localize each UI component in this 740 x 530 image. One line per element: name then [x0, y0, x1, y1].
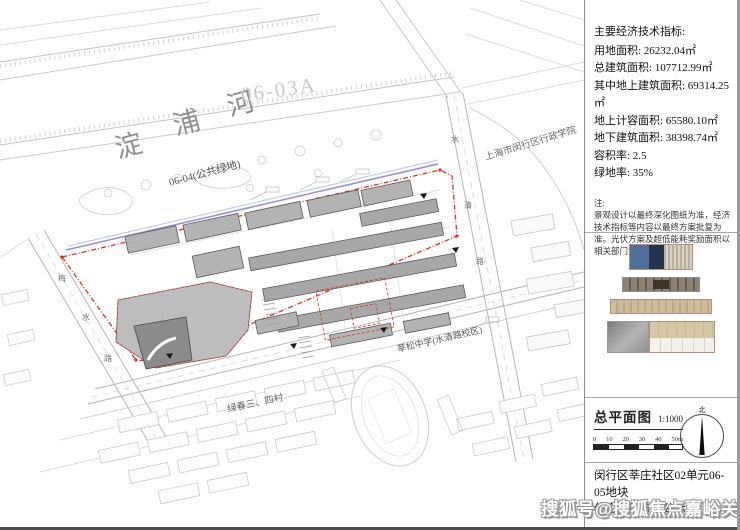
west-houses [1, 289, 35, 385]
river-label-char1: 淀 [112, 128, 146, 164]
indicator-row: 绿地率: 35% [594, 165, 731, 183]
scale-tick: 20 [622, 436, 629, 443]
scale-bar: 0 10 20 30 40 50m [593, 436, 683, 450]
indicator-row: 地上计容面积: 65580.10㎡ [594, 113, 731, 131]
plan-scale: 1:1000 [658, 414, 683, 424]
indicators-title: 主要经济技术指标: [594, 24, 731, 42]
road-left-char3: 路 [104, 353, 112, 363]
elevation-thumbnail-2 [622, 277, 700, 292]
info-panel: 主要经济技术指标: 用地面积: 26232.04㎡ 总建筑面积: 107712.… [584, 0, 737, 530]
north-needle-icon [697, 416, 708, 455]
elevation-thumbnails [585, 240, 737, 356]
east-houses [453, 375, 584, 458]
indicator-row: 容积率: 2.5 [594, 148, 731, 166]
road-right-char2: 清 [464, 200, 472, 210]
watermark: 搜狐号@搜狐焦点嘉峪关站 [541, 496, 740, 521]
scale-tick: 0 [593, 436, 596, 443]
site-plan-map: 淀 浦 河 06-03A 06-04(公共绿地) 上海市闵行区行政学院 莘松中学… [0, 0, 584, 530]
background-lines [0, 0, 584, 472]
bridge-road [380, 0, 462, 98]
elevation-thumbnail-1 [629, 244, 693, 270]
parcel-0604-label: 06-04(公共绿地) [167, 157, 242, 189]
road-left-char1: 梅 [58, 273, 66, 283]
note-title: 注: [594, 197, 731, 209]
north-label: 北 [699, 405, 706, 415]
village-houses [93, 370, 371, 514]
public-notice-drawing: 淀 浦 河 06-03A 06-04(公共绿地) 上海市闵行区行政学院 莘松中学… [0, 0, 740, 530]
road-right-char1: 水 [451, 134, 459, 144]
scale-tick: 10 [606, 436, 613, 443]
divider [585, 462, 737, 463]
plan-title: 总平面图 [594, 406, 652, 426]
indicator-row: 其中地上建筑面积: 69314.25㎡ [594, 78, 731, 113]
scale-tick: 40 [655, 436, 662, 443]
road-left-char2: 水 [82, 312, 90, 322]
elevation-thumbnail-3 [610, 299, 712, 314]
elevation-thumbnail-4 [607, 321, 715, 353]
indicator-row: 地下建筑面积: 38398.74㎡ [594, 130, 731, 148]
parcel-0603a-label: 06-03A [239, 73, 318, 107]
college-label: 上海市闵行区行政学院 [483, 123, 578, 162]
north-arrow: 北 [680, 414, 724, 458]
indicator-row: 总建筑面积: 107712.99㎡ [594, 60, 731, 78]
plan-title-block: 总平面图 1:1000 [594, 406, 683, 430]
road-right-char3: 路 [476, 256, 484, 266]
divider [585, 397, 737, 398]
divider [585, 232, 737, 233]
dianpu-river [0, 14, 460, 160]
scale-tick: 30 [639, 436, 646, 443]
indicator-row: 用地面积: 26232.04㎡ [594, 43, 731, 61]
economic-indicators: 主要经济技术指标: 用地面积: 26232.04㎡ 总建筑面积: 107712.… [585, 0, 737, 183]
